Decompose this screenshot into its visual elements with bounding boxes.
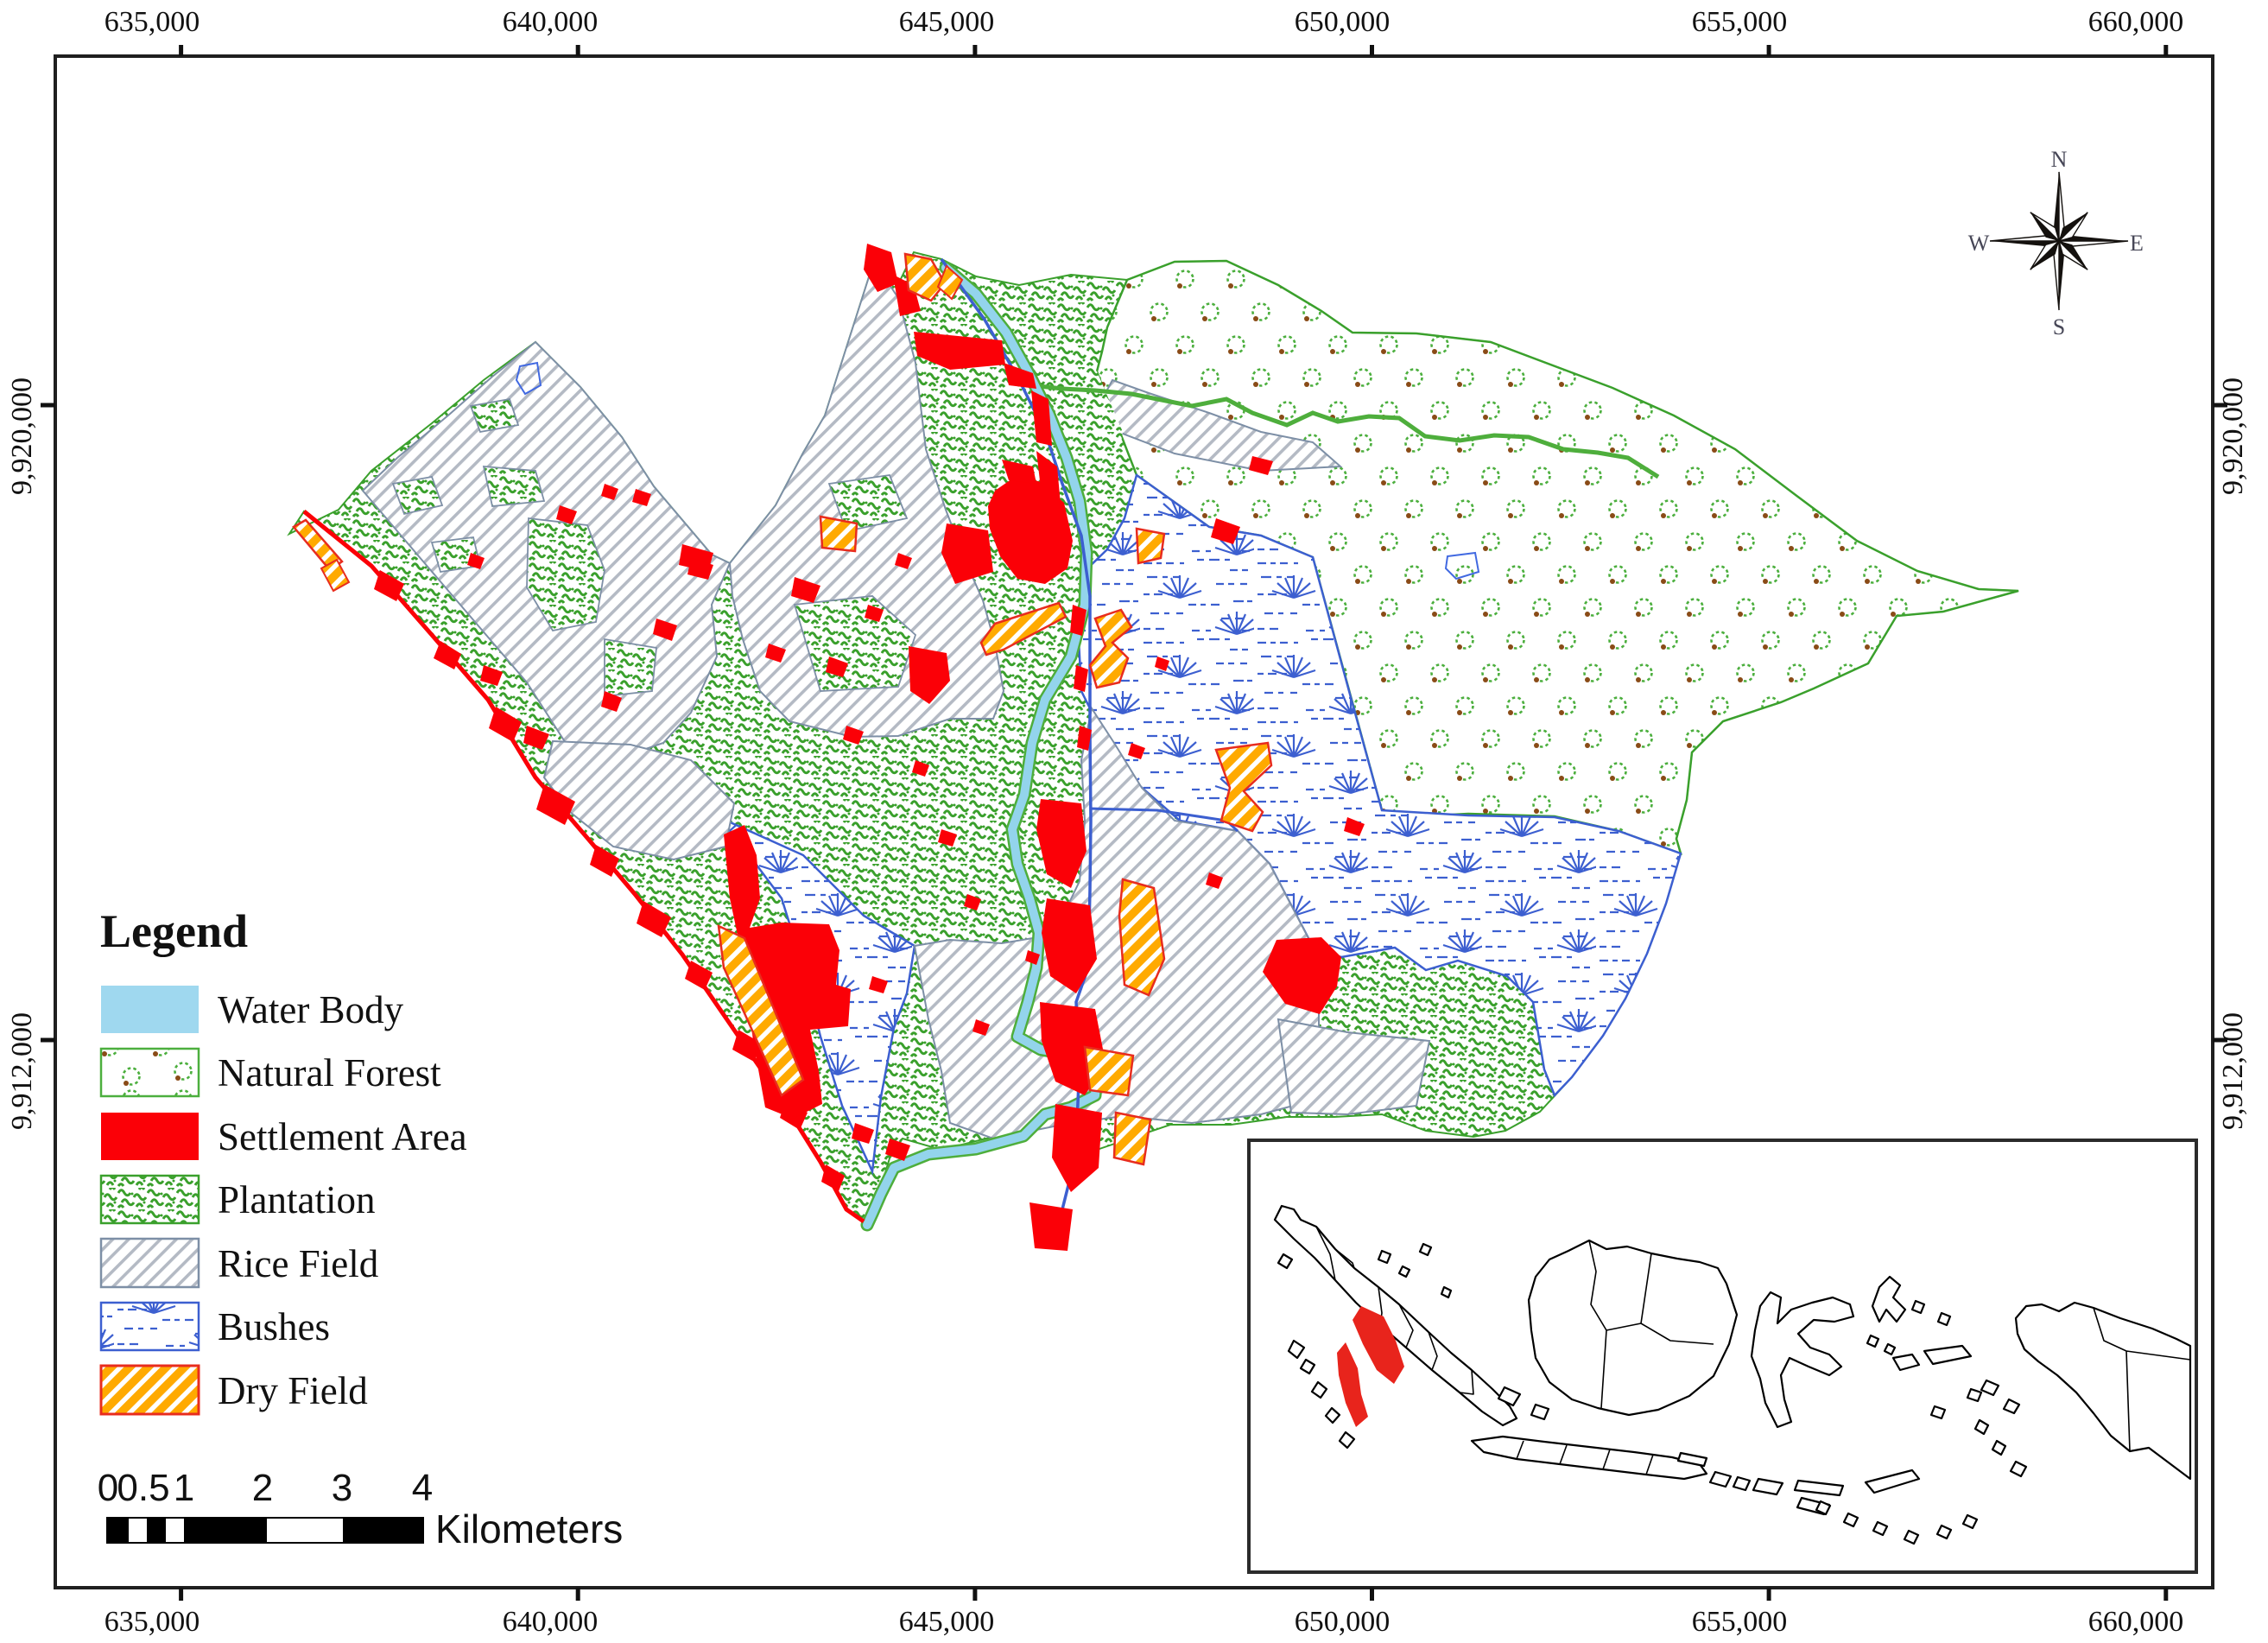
svg-text:9,920,000: 9,920,000 <box>6 377 38 495</box>
svg-text:E: E <box>2130 231 2144 256</box>
svg-text:Natural Forest: Natural Forest <box>218 1051 441 1094</box>
svg-text:1: 1 <box>174 1467 194 1509</box>
svg-text:645,000: 645,000 <box>899 1606 995 1638</box>
svg-text:655,000: 655,000 <box>1692 6 1788 38</box>
svg-text:650,000: 650,000 <box>1295 6 1391 38</box>
svg-text:635,000: 635,000 <box>105 1606 200 1638</box>
svg-text:2: 2 <box>252 1467 273 1509</box>
svg-text:640,000: 640,000 <box>503 1606 599 1638</box>
svg-text:650,000: 650,000 <box>1295 1606 1391 1638</box>
svg-text:655,000: 655,000 <box>1692 1606 1788 1638</box>
svg-text:Rice Field: Rice Field <box>218 1242 378 1285</box>
svg-text:660,000: 660,000 <box>2088 6 2184 38</box>
svg-text:9,912,000: 9,912,000 <box>2217 1012 2249 1130</box>
svg-text:W: W <box>1968 231 1990 256</box>
svg-text:9,920,000: 9,920,000 <box>2217 377 2249 495</box>
svg-text:Dry Field: Dry Field <box>218 1369 368 1412</box>
svg-text:0: 0 <box>98 1467 118 1509</box>
svg-text:Settlement Area: Settlement Area <box>218 1115 467 1158</box>
svg-text:3: 3 <box>332 1467 352 1509</box>
svg-text:Bushes: Bushes <box>218 1305 330 1348</box>
svg-text:660,000: 660,000 <box>2088 1606 2184 1638</box>
svg-text:0.5: 0.5 <box>117 1467 169 1509</box>
svg-text:9,912,000: 9,912,000 <box>6 1012 38 1130</box>
svg-text:4: 4 <box>412 1467 433 1509</box>
svg-text:640,000: 640,000 <box>503 6 599 38</box>
svg-text:Plantation: Plantation <box>218 1178 375 1221</box>
svg-text:N: N <box>2051 147 2068 172</box>
svg-text:Water Body: Water Body <box>218 988 404 1031</box>
svg-text:635,000: 635,000 <box>105 6 200 38</box>
svg-text:S: S <box>2053 314 2065 339</box>
svg-text:645,000: 645,000 <box>899 6 995 38</box>
svg-text:Legend: Legend <box>100 905 248 957</box>
svg-text:Kilometers: Kilometers <box>435 1507 623 1551</box>
